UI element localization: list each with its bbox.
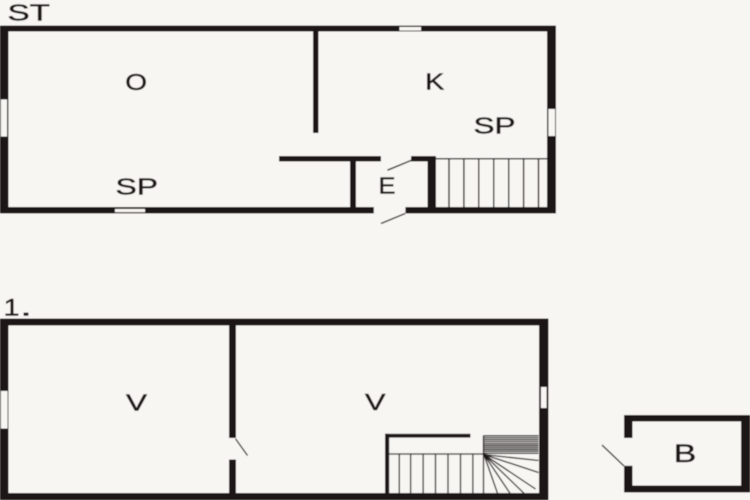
svg-text:SP: SP bbox=[474, 113, 516, 139]
svg-text:.: . bbox=[20, 294, 32, 321]
svg-text:O: O bbox=[125, 69, 147, 95]
svg-text:SP: SP bbox=[116, 174, 159, 200]
svg-text:K: K bbox=[425, 69, 445, 95]
svg-text:V: V bbox=[365, 389, 386, 415]
svg-text:1: 1 bbox=[4, 294, 20, 321]
svg-text:ST: ST bbox=[8, 0, 51, 26]
svg-text:E: E bbox=[379, 173, 396, 199]
svg-text:V: V bbox=[126, 390, 147, 416]
svg-text:B: B bbox=[674, 440, 697, 468]
